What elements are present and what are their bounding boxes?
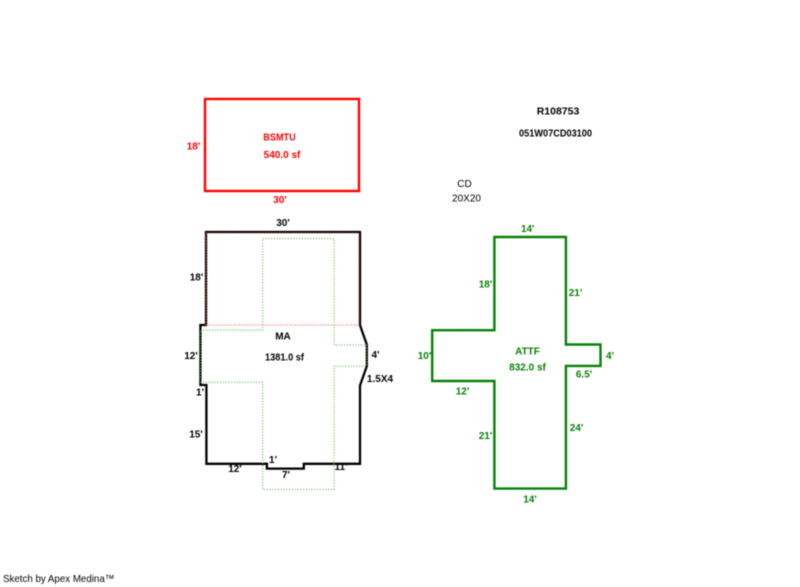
svg-text:540.0 sf: 540.0 sf [264, 150, 301, 161]
svg-text:14': 14' [521, 224, 535, 235]
svg-text:1': 1' [196, 388, 204, 399]
svg-text:12': 12' [456, 387, 470, 398]
svg-text:21': 21' [569, 288, 583, 299]
svg-text:15': 15' [189, 430, 203, 441]
svg-text:11': 11' [335, 462, 348, 473]
svg-text:1.5X4: 1.5X4 [367, 374, 394, 385]
svg-text:18': 18' [187, 142, 201, 153]
svg-text:30': 30' [273, 195, 287, 206]
svg-text:MA: MA [275, 332, 291, 343]
svg-text:14': 14' [523, 495, 537, 506]
svg-text:051W07CD03100: 051W07CD03100 [519, 129, 592, 140]
svg-text:4': 4' [372, 350, 380, 361]
svg-text:18': 18' [190, 273, 204, 284]
svg-text:4': 4' [606, 351, 614, 362]
svg-text:12': 12' [228, 464, 242, 475]
svg-text:18': 18' [479, 280, 493, 291]
svg-text:7': 7' [282, 470, 290, 481]
svg-text:CD: CD [457, 179, 471, 190]
svg-text:6.5': 6.5' [576, 370, 592, 381]
svg-text:R108753: R108753 [537, 106, 580, 118]
svg-text:ATTF: ATTF [515, 347, 540, 358]
svg-text:Sketch by Apex Medina™: Sketch by Apex Medina™ [3, 574, 115, 585]
svg-text:832.0 sf: 832.0 sf [509, 363, 546, 374]
svg-text:20X20: 20X20 [452, 194, 481, 205]
svg-text:30': 30' [276, 218, 290, 229]
svg-text:BSMTU: BSMTU [263, 133, 296, 144]
svg-text:21': 21' [479, 431, 493, 442]
svg-text:1381.0 sf: 1381.0 sf [265, 353, 305, 364]
svg-text:24': 24' [570, 423, 584, 434]
svg-text:1': 1' [269, 455, 277, 466]
svg-text:10': 10' [418, 351, 432, 362]
svg-text:12': 12' [184, 351, 198, 362]
